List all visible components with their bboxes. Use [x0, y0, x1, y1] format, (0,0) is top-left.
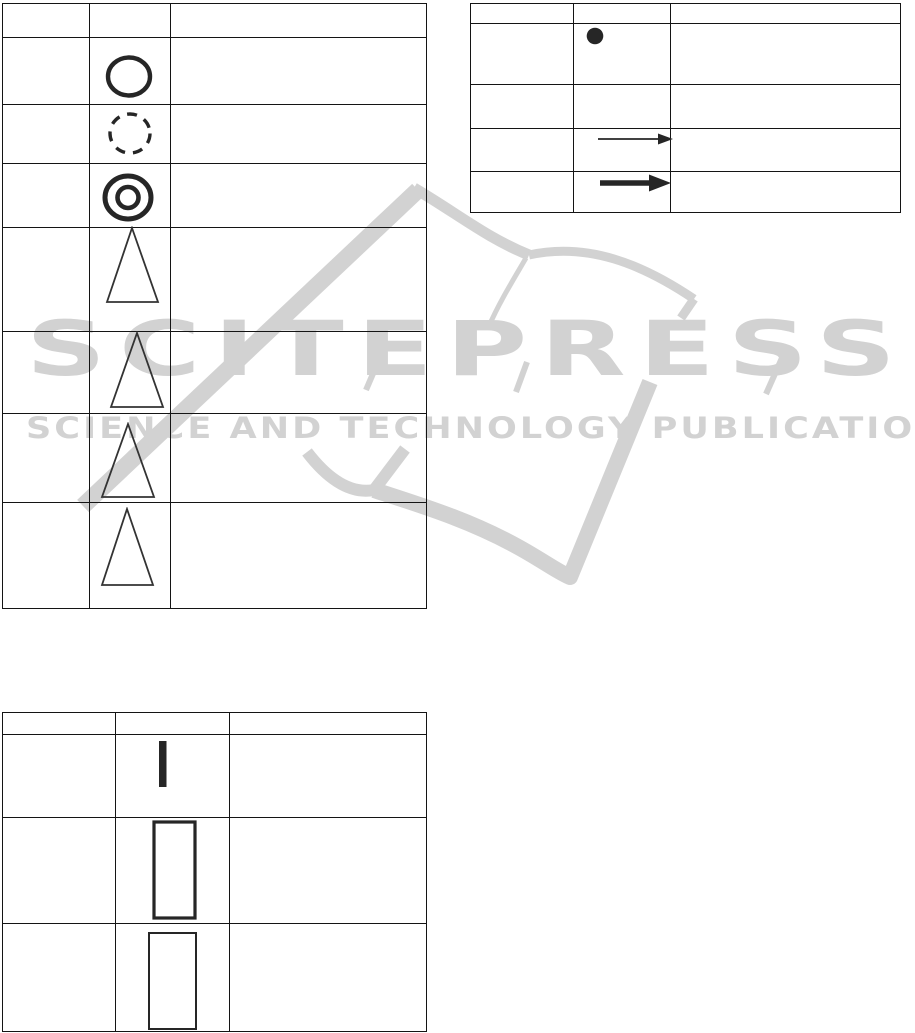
- table-cell: [574, 172, 671, 213]
- table-cell: [171, 503, 427, 609]
- table-cell: [471, 85, 574, 129]
- table-cell: [574, 85, 671, 129]
- table-cell: [574, 129, 671, 172]
- table-cell: [90, 164, 171, 228]
- table-cell: [3, 924, 116, 1032]
- table-cell: [671, 172, 901, 213]
- table-cell: [671, 4, 901, 24]
- table-cell: [230, 713, 427, 735]
- table-cell: [90, 38, 171, 105]
- table-cell: [90, 228, 171, 332]
- legend-table-bottom-left: [2, 712, 427, 1032]
- table-cell: [671, 85, 901, 129]
- table-cell: [171, 164, 427, 228]
- table-cell: [3, 713, 116, 735]
- table-cell: [3, 105, 90, 164]
- table-cell: [574, 24, 671, 85]
- table-cell: [230, 924, 427, 1032]
- table-cell: [90, 414, 171, 503]
- table-cell: [171, 38, 427, 105]
- table-cell: [3, 503, 90, 609]
- table-cell: [3, 228, 90, 332]
- table-cell: [471, 4, 574, 24]
- table-cell: [3, 164, 90, 228]
- table-cell: [3, 818, 116, 924]
- table-cell: [90, 4, 171, 38]
- table-cell: [116, 818, 230, 924]
- table-cell: [90, 105, 171, 164]
- table-cell: [171, 332, 427, 414]
- table-cell: [3, 735, 116, 818]
- table-cell: [471, 172, 574, 213]
- table-cell: [3, 38, 90, 105]
- table-cell: [171, 4, 427, 38]
- table-cell: [171, 228, 427, 332]
- legend-table-top-left: [2, 3, 427, 609]
- paper-page: SCITEPRESS SCIENCE AND TECHNOLOGY PUBLIC…: [0, 0, 915, 1033]
- table-cell: [3, 414, 90, 503]
- table-cell: [230, 818, 427, 924]
- table-cell: [90, 503, 171, 609]
- table-cell: [171, 414, 427, 503]
- legend-table-top-right: [470, 3, 901, 213]
- table-cell: [90, 332, 171, 414]
- table-cell: [116, 924, 230, 1032]
- table-cell: [574, 4, 671, 24]
- table-cell: [671, 129, 901, 172]
- table-cell: [671, 24, 901, 85]
- table-cell: [171, 105, 427, 164]
- table-cell: [3, 332, 90, 414]
- table-cell: [116, 735, 230, 818]
- table-cell: [471, 129, 574, 172]
- table-cell: [230, 735, 427, 818]
- table-cell: [471, 24, 574, 85]
- table-cell: [116, 713, 230, 735]
- table-cell: [3, 4, 90, 38]
